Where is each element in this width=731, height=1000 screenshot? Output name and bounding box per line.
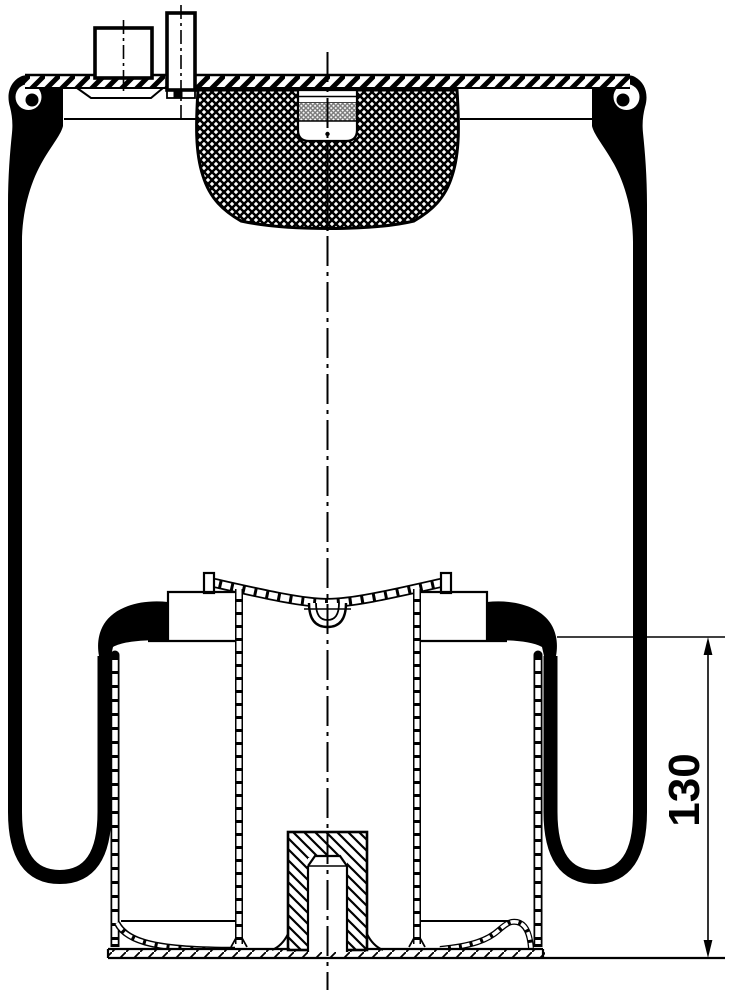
bellows-left-wall <box>8 75 63 800</box>
bellows-bead-right <box>487 601 557 656</box>
piston-closure-right <box>440 922 531 949</box>
bellows-right-wall <box>592 75 647 800</box>
piston-skirt-right <box>534 651 543 948</box>
technical-drawing-canvas: 130 <box>0 0 731 1000</box>
air-spring-drawing: 130 <box>0 0 731 1000</box>
piston-neck-right <box>409 589 425 947</box>
dimension-arrow-up <box>704 637 713 655</box>
dimension-label: 130 <box>660 753 709 826</box>
stud-recess <box>77 88 163 98</box>
piston-closure-left <box>117 923 235 950</box>
bellows-bead-left <box>98 601 168 656</box>
bellows-loop-left <box>15 656 105 877</box>
mounting-stud-large <box>167 5 195 122</box>
piston-skirt-left <box>111 651 120 948</box>
saddle-tab-left <box>204 573 214 593</box>
dimension-arrow-down <box>704 940 713 958</box>
saddle-tab-right <box>441 573 451 593</box>
piston-neck-left <box>231 589 247 947</box>
bellows-loop-right <box>551 656 641 877</box>
